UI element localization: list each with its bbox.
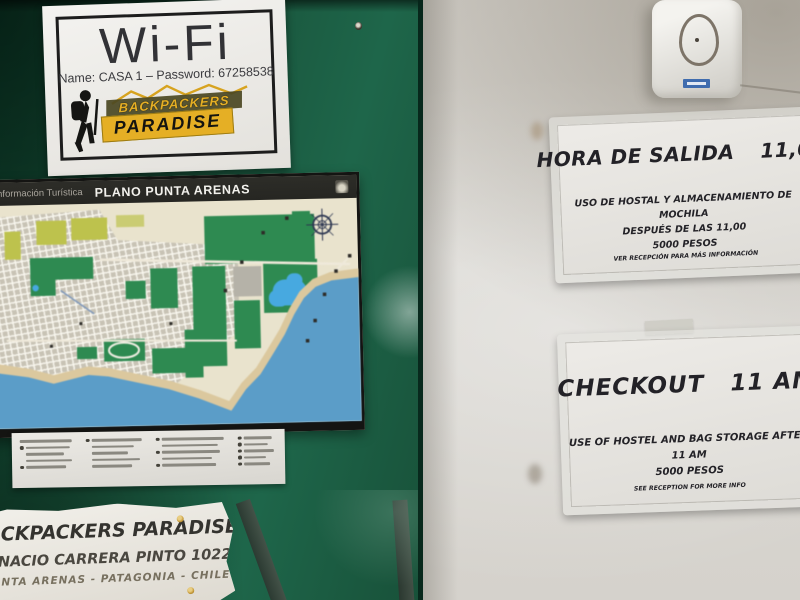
hostel-wall-photo: Wi-Fi Name: CASA 1 – Password: 67258538 …: [0, 0, 800, 600]
sign-title: CHECKOUT 11 AM: [557, 368, 800, 403]
cemetery-block: [233, 266, 262, 297]
doorbell-brand-label: [683, 79, 710, 88]
map-image: [0, 198, 362, 429]
address-hostel-name: BACKPACKERS PARADISE: [0, 515, 238, 546]
sign-title-time: 11 AM: [730, 368, 800, 397]
map-publisher-logo: [335, 180, 348, 193]
shadow-object: [236, 499, 289, 600]
sign-paper: CHECKOUT 11 AM USE OF HOSTEL AND BAG STO…: [565, 334, 800, 507]
wall-stain: [528, 464, 542, 484]
sign-title-time: 11,00: [760, 136, 800, 163]
map-header-label: Información Turística: [0, 187, 83, 200]
checkout-sign-english: CHECKOUT 11 AM USE OF HOSTEL AND BAG STO…: [557, 326, 800, 516]
wall-stain: [531, 122, 543, 140]
sign-paper: HORA DE SALIDA 11,00 USO DE HOSTAL Y ALM…: [557, 115, 800, 275]
sign-title-text: CHECKOUT: [557, 371, 705, 402]
stadium-oval: [109, 342, 139, 358]
map-legend: [12, 429, 286, 488]
sign-title: HORA DE SALIDA 11,00: [536, 136, 800, 172]
legend-column: [20, 439, 73, 481]
wifi-sign-frame: Wi-Fi Name: CASA 1 – Password: 67258538 …: [55, 9, 277, 160]
legend-column: [238, 436, 275, 478]
map-title: PLANO PUNTA ARENAS: [94, 182, 250, 200]
farmland-yellow: [4, 215, 145, 260]
legend-column: [86, 438, 143, 480]
gold-pin: [187, 587, 194, 594]
sign-body: USO DE HOSTAL Y ALMACENAMIENTO DE MOCHIL…: [560, 187, 800, 257]
address-street: IGNACIO CARRERA PINTO 1022: [0, 547, 232, 572]
checkout-sign-spanish: HORA DE SALIDA 11,00 USO DE HOSTAL Y ALM…: [549, 107, 800, 284]
address-city: PUNTA ARENAS - PATAGONIA - CHILE: [0, 569, 231, 590]
doorbell[interactable]: [652, 0, 742, 98]
backpackers-paradise-logo: BACKPACKERS PARADISE: [91, 89, 244, 147]
address-sign: BACKPACKERS PARADISE IGNACIO CARRERA PIN…: [0, 500, 236, 600]
sign-footer: SEE RECEPTION FOR MORE INFO: [634, 481, 746, 492]
wifi-sign: Wi-Fi Name: CASA 1 – Password: 67258538 …: [42, 0, 291, 176]
sign-body: USE OF HOSTEL AND BAG STORAGE AFTER 11 A…: [568, 428, 800, 484]
wifi-title: Wi-Fi: [98, 16, 231, 73]
doorbell-led: [695, 38, 699, 42]
sign-title-text: HORA DE SALIDA: [536, 140, 735, 172]
legend-column: [156, 437, 225, 479]
wall-edge-shadow: [418, 0, 458, 600]
doorbell-button[interactable]: [679, 14, 719, 66]
map-poster: Información Turística PLANO PUNTA ARENAS: [0, 172, 365, 438]
board-glow: [300, 490, 418, 600]
push-pin: [355, 22, 362, 30]
map-features: [0, 198, 362, 429]
